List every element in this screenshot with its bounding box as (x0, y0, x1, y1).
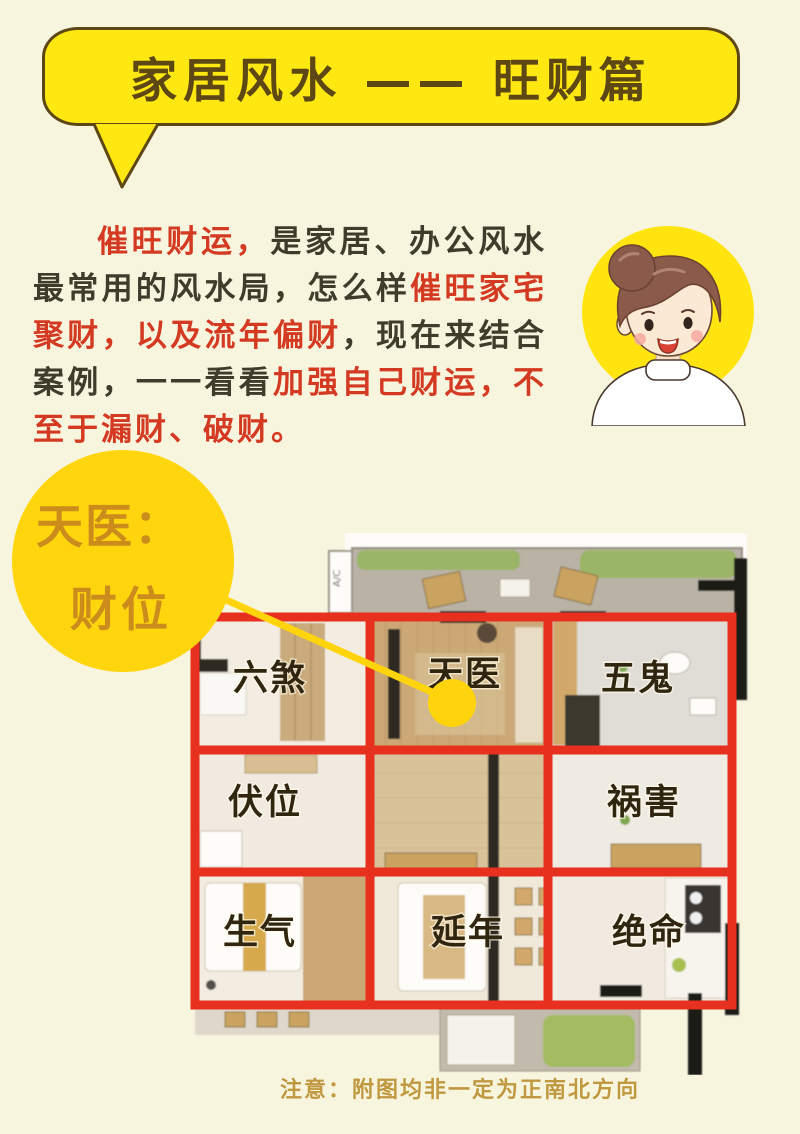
intro-segment: 催旺财运， (97, 224, 270, 260)
ac-label: A/C (332, 570, 343, 587)
intro-line-4: 案例，一一看看加强自己财运，不 (33, 360, 547, 407)
speech-bubble-tail-icon (88, 123, 168, 195)
intro-segment: 案例，一一看看 (33, 365, 273, 401)
plan-label-jueming: 绝命 (612, 912, 686, 953)
intro-segment: 催旺家宅 (410, 271, 547, 307)
intro-line-3: 聚财，以及流年偏财，现在来结合 (33, 313, 547, 360)
intro-segment: 至于漏财、破财。 (33, 412, 305, 448)
plan-label-yannian: 延年 (431, 913, 505, 953)
footer-note: 注意：附图均非一定为正南北方向 (240, 1072, 680, 1104)
plan-label-huohai: 祸害 (607, 783, 681, 823)
poster-page: 家居风水 —— 旺财篇 催旺财运，是家居、办公风水最常用的风水局，怎么样催旺家宅… (0, 0, 800, 1134)
intro-segment: ，现在来结合 (342, 318, 547, 354)
intro-segment: 最常用的风水局，怎么样 (33, 271, 410, 307)
intro-paragraph: 催旺财运，是家居、办公风水最常用的风水局，怎么样催旺家宅聚财，以及流年偏财，现在… (33, 219, 547, 454)
woman-avatar-icon (580, 222, 758, 426)
intro-line-5: 至于漏财、破财。 (33, 407, 547, 454)
tianyi-callout-circle: 天医： 财位 (12, 450, 234, 672)
intro-segment: 聚财，以及流年偏财 (33, 318, 342, 354)
tianyi-marker-dot (428, 679, 476, 727)
intro-line-2: 最常用的风水局，怎么样催旺家宅 (33, 266, 547, 313)
plan-label-wugui: 五鬼 (601, 659, 675, 699)
plan-label-fuwei: 伏位 (228, 783, 302, 823)
intro-segment: 是家居、办公风水 (270, 224, 547, 260)
callout-line2: 财位 (12, 571, 234, 640)
callout-line1: 天医： (12, 488, 234, 557)
plan-label-shengqi: 生气 (223, 913, 297, 953)
page-title: 家居风水 —— 旺财篇 (130, 42, 652, 111)
intro-line-1: 催旺财运，是家居、办公风水 (33, 219, 547, 266)
title-speech-bubble: 家居风水 —— 旺财篇 (42, 27, 740, 126)
intro-segment: 加强自己财运，不 (273, 365, 547, 401)
floor-plan: A/C (185, 533, 760, 1075)
plan-label-liusha: 六煞 (233, 659, 307, 699)
